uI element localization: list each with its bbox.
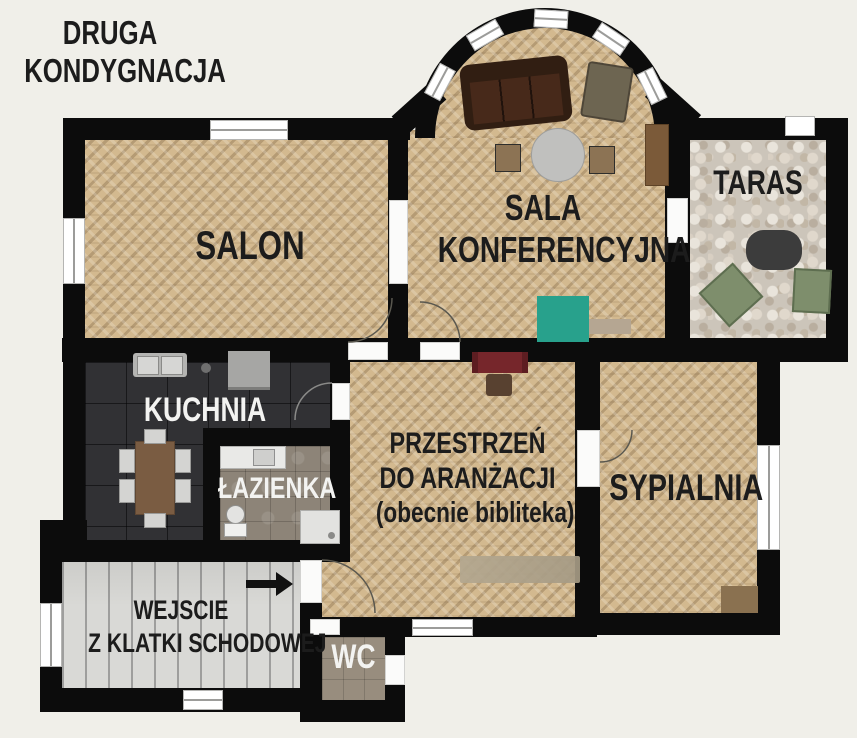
- bathroom-top-wall: [203, 428, 350, 446]
- bathroom-toilet-bowl: [226, 505, 245, 524]
- armchair: [580, 61, 634, 124]
- dining-table: [135, 441, 175, 515]
- bedroom-bottom-wall: [575, 613, 780, 635]
- terrace-label: TARAS: [705, 166, 811, 200]
- shower: [300, 510, 340, 544]
- kitchen-appliance: [228, 351, 270, 390]
- wc-right-door: [385, 655, 405, 685]
- salon-label: SALON: [133, 226, 367, 266]
- dining-chair-1: [119, 449, 135, 473]
- terrace-right-wall: [826, 118, 848, 358]
- dining-chair-3: [175, 449, 191, 473]
- salon-library-door: [348, 342, 388, 360]
- staircase-left-window: [40, 603, 62, 667]
- sink-basin-right: [161, 356, 183, 375]
- chair-right: [589, 146, 615, 174]
- terrace-chair-right: [792, 268, 832, 314]
- staircase-bottom-wall: [40, 688, 322, 712]
- arrow-shaft: [246, 580, 276, 588]
- terrace-top-opening: [785, 116, 815, 136]
- bedroom-dresser: [721, 586, 758, 613]
- sofa-cushions: [470, 73, 564, 124]
- salon-conference-doorway: [389, 200, 408, 284]
- dining-chair-5: [144, 429, 166, 444]
- arrow-right-icon: [246, 572, 294, 596]
- library-bedroom-door: [577, 430, 600, 487]
- teal-rug: [537, 296, 589, 342]
- bathroom-sink: [253, 449, 275, 466]
- chair-left: [495, 144, 521, 172]
- sofa: [459, 55, 573, 132]
- kitchen-sink: [133, 353, 187, 377]
- terrace-top-wall: [665, 118, 848, 140]
- dining-chair-6: [144, 513, 166, 528]
- library-label-line2: DO ARANŻACJI: [376, 464, 559, 494]
- stove-knob: [201, 363, 211, 373]
- bedroom-label: SYPIALNIA: [609, 469, 746, 506]
- wc-bottom-wall: [300, 700, 405, 722]
- plan-title-line1: DRUGA: [24, 14, 196, 52]
- library-label-line1: PRZESTRZEŃ: [376, 429, 559, 459]
- salon-top-window: [210, 120, 288, 140]
- entrance-label-line1: WEJSCIE: [88, 597, 274, 624]
- salon-left-window: [63, 218, 85, 284]
- library-rug: [460, 556, 580, 583]
- arrow-head: [276, 572, 293, 596]
- library-bottom-window: [412, 619, 473, 636]
- floor-plan: DRUGA KONDYGNACJA SALON SALA KONFERENCYJ…: [0, 0, 857, 738]
- bathroom-toilet-tank: [224, 523, 247, 537]
- dining-chair-2: [119, 479, 135, 503]
- entrance-label-line2: Z KLATKI SCHODOWEJ: [88, 630, 274, 657]
- kitchen-label: KUCHNIA: [111, 393, 298, 427]
- conference-label-line1: SALA: [438, 190, 649, 226]
- low-bench: [589, 319, 631, 334]
- desk-chair: [486, 374, 512, 396]
- dining-chair-4: [175, 479, 191, 503]
- library-label-line3: (obecnie bibliteka): [376, 499, 559, 528]
- bay-window-3: [534, 9, 569, 29]
- bathroom-counter: [220, 446, 286, 469]
- desk: [472, 352, 528, 373]
- bathroom-label: ŁAZIENKA: [218, 474, 331, 504]
- wc-label: WC: [329, 640, 378, 674]
- staircase-library-door: [300, 560, 322, 603]
- cabinet: [645, 124, 669, 186]
- plan-title-line2: KONDYGNACJA: [24, 52, 196, 90]
- shower-drain: [328, 532, 335, 539]
- conference-label-line2: KONFERENCYJNA: [438, 232, 649, 268]
- round-table: [531, 128, 585, 182]
- staircase-bottom-window: [183, 690, 223, 710]
- left-outer-wall: [63, 118, 85, 545]
- conference-library-door: [420, 342, 460, 360]
- kitchen-library-door: [332, 383, 350, 420]
- sink-basin-left: [137, 356, 159, 375]
- terrace-table: [746, 230, 802, 270]
- plan-title: DRUGA KONDYGNACJA: [24, 14, 196, 90]
